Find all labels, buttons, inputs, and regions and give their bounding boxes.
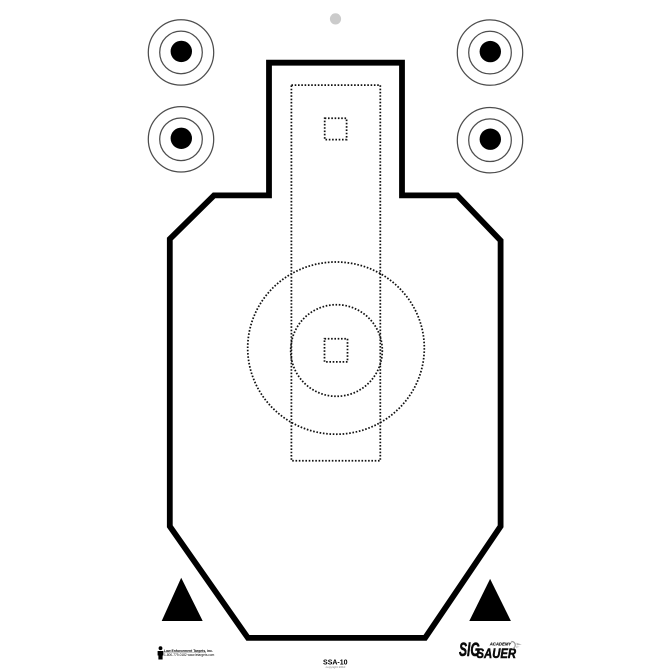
svg-text:SAUER: SAUER — [477, 646, 517, 661]
svg-text:ACADEMY: ACADEMY — [489, 641, 513, 646]
svg-text:copyright 2010: copyright 2010 — [326, 665, 346, 669]
svg-text:1-800-779-0182 www.letargets.: 1-800-779-0182 www.letargets.com — [164, 653, 215, 657]
